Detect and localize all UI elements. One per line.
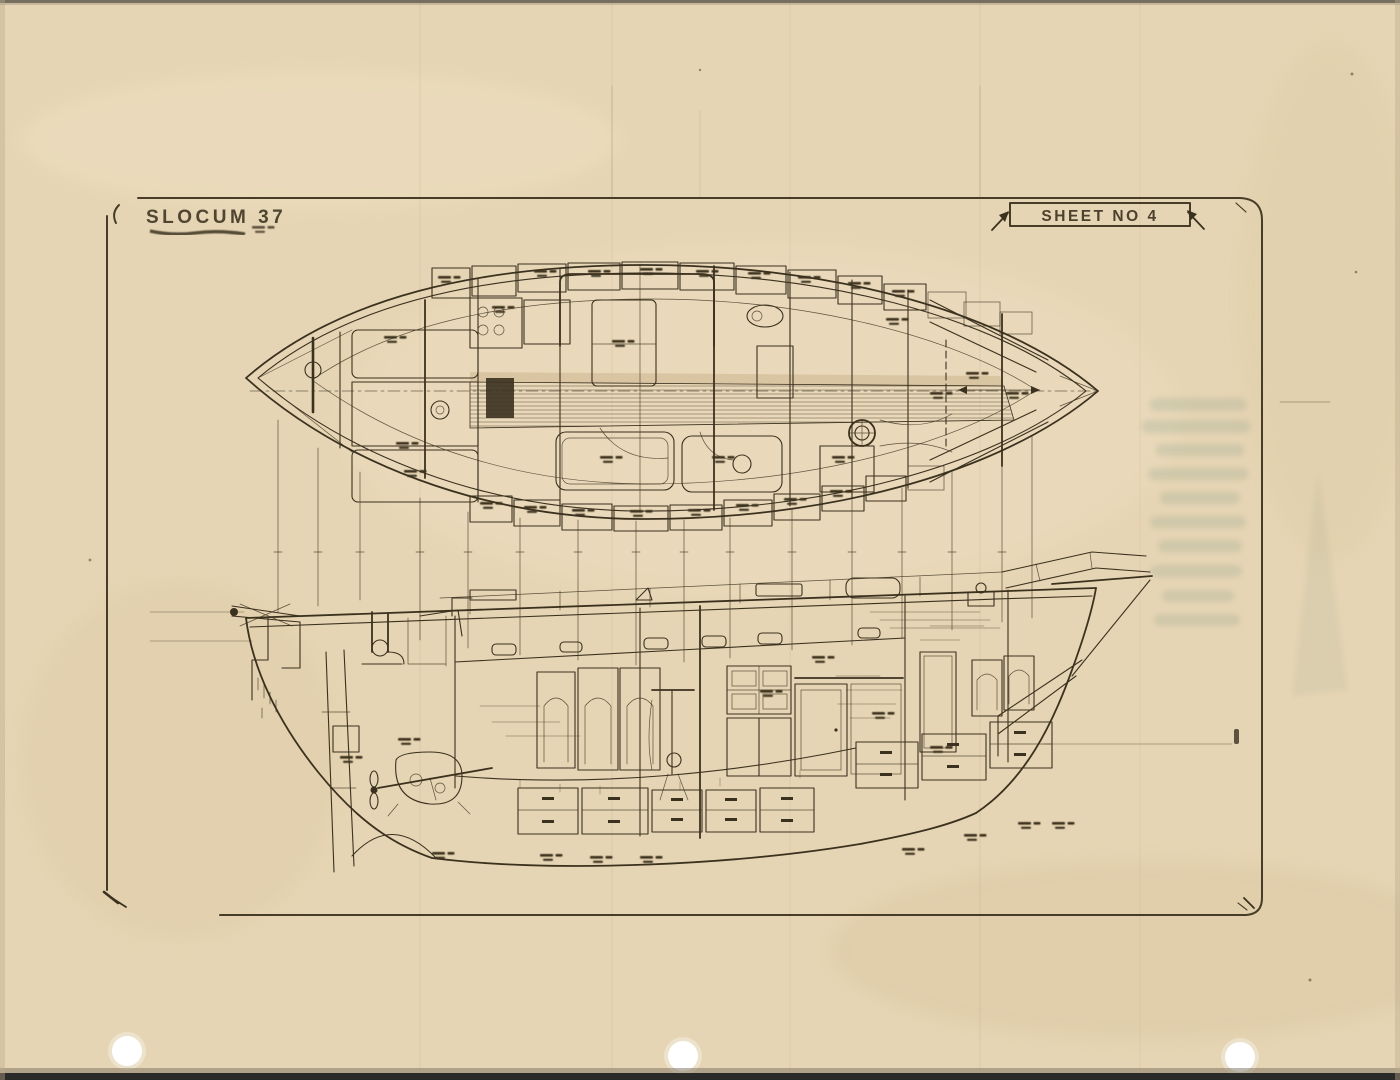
sheet-number-label: SHEET NO 4 <box>1041 208 1158 225</box>
drawing-title: SLOCUM 37 <box>146 207 286 228</box>
plan-walkway <box>470 372 1014 428</box>
scanned-blueprint-page: SLOCUM 37 SHEET NO 4 <box>0 0 1400 1080</box>
blueprint-drawing: SLOCUM 37 SHEET NO 4 <box>0 0 1400 1080</box>
icebox-dark <box>486 378 514 418</box>
punch-hole <box>108 1032 146 1070</box>
